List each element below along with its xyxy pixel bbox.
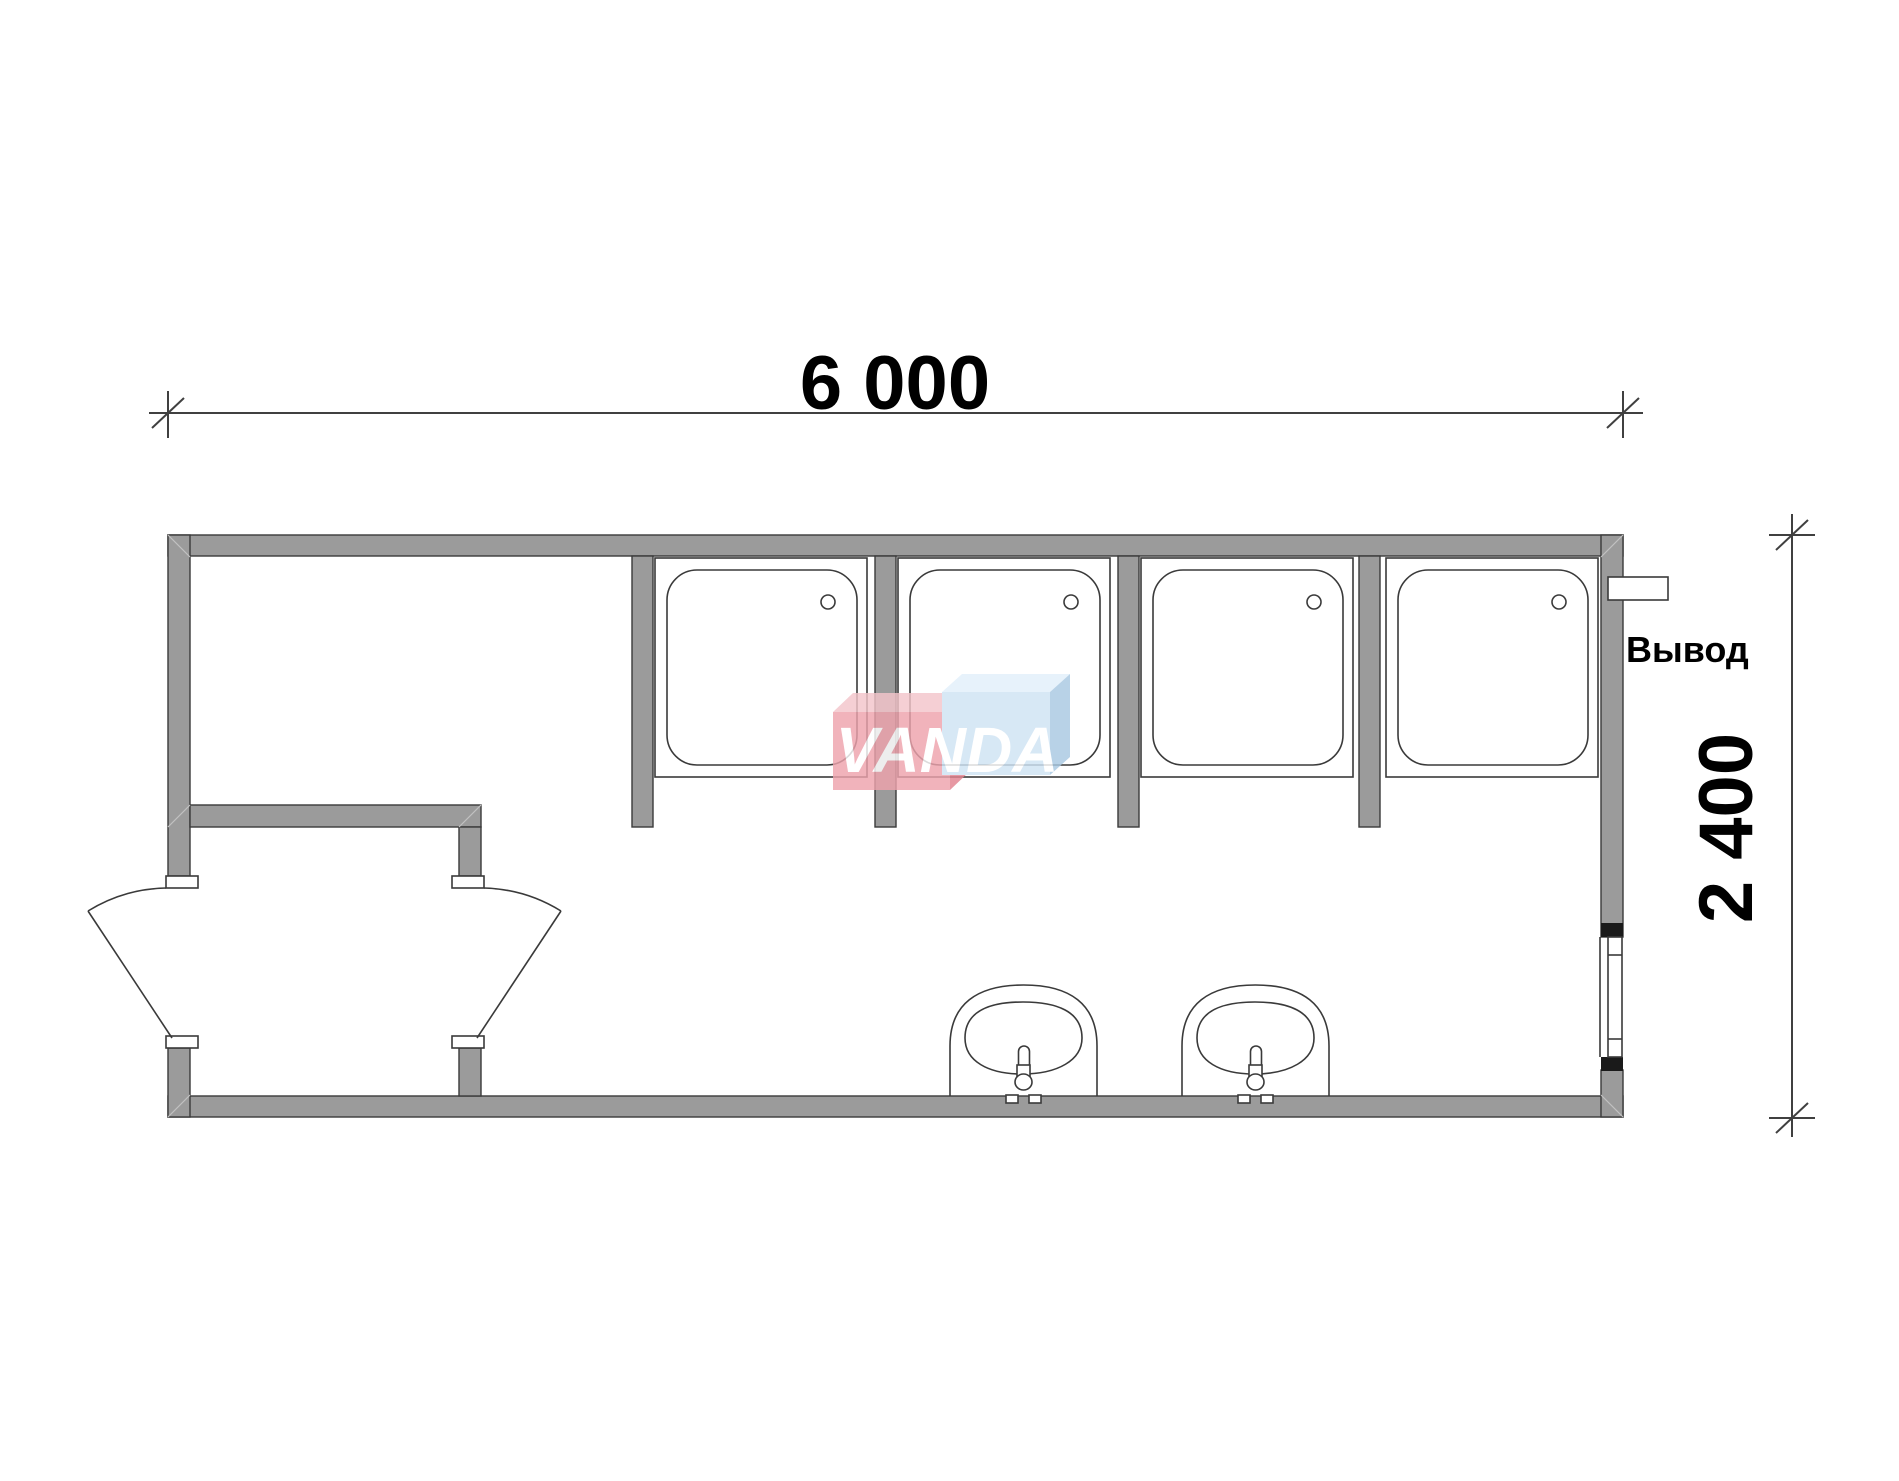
wall-west-upper xyxy=(168,535,190,876)
shower-tray-4-drain xyxy=(1552,595,1566,609)
washbasin-2-trap xyxy=(1247,1074,1264,1090)
wall-vestibule-south xyxy=(190,805,481,827)
window-cap-bottom xyxy=(1601,1057,1623,1071)
shower-tray-3-basin xyxy=(1153,570,1343,765)
washbasin-2-mount-left xyxy=(1238,1095,1250,1103)
inner-door-swing-arc xyxy=(484,888,561,911)
inner-door-leaf-line xyxy=(477,911,561,1038)
washbasins xyxy=(950,985,1329,1103)
washbasin-1-mount-left xyxy=(1006,1095,1018,1103)
vanda-watermark: VANDA xyxy=(833,674,1070,790)
floor-plan-page: 6 000 2 400 xyxy=(0,0,1899,1481)
door-jamb-inner-top xyxy=(452,876,484,888)
window-cap-top xyxy=(1601,923,1623,937)
wall-south xyxy=(168,1096,1623,1117)
floor-plan-drawing: 6 000 2 400 xyxy=(0,0,1899,1481)
washbasin-1 xyxy=(950,985,1097,1103)
door-jamb-inner-bottom xyxy=(452,1036,484,1048)
dimension-top: 6 000 xyxy=(149,341,1643,438)
washbasin-1-trap xyxy=(1015,1074,1032,1090)
partition-shower-4 xyxy=(1359,556,1380,827)
inner-door-leaf xyxy=(477,888,561,1038)
shower-tray-1-drain xyxy=(821,595,835,609)
wall-vestibule-return-lower xyxy=(459,1048,481,1096)
outlet-stub xyxy=(1608,577,1668,600)
shower-tray-3-rim xyxy=(1141,558,1353,777)
wall-vestibule-return-upper xyxy=(459,827,481,876)
washbasin-1-mount-right xyxy=(1029,1095,1041,1103)
window-east xyxy=(1600,923,1623,1071)
wall-north xyxy=(168,535,1623,556)
watermark-text: VANDA xyxy=(836,714,1059,786)
watermark-blue-top xyxy=(942,674,1070,692)
exterior-door-leaf-line xyxy=(88,911,172,1038)
shower-tray-4 xyxy=(1386,558,1598,777)
exterior-door-swing-arc xyxy=(88,888,166,911)
shower-tray-3 xyxy=(1141,558,1353,777)
walls xyxy=(168,535,1623,1117)
washbasin-2-mount-right xyxy=(1261,1095,1273,1103)
shower-tray-4-basin xyxy=(1398,570,1588,765)
wall-east-lower xyxy=(1601,1070,1623,1117)
entrance-doors xyxy=(88,876,561,1048)
shower-tray-4-rim xyxy=(1386,558,1598,777)
dimension-right: 2 400 xyxy=(1684,514,1815,1137)
exterior-door-leaf xyxy=(88,888,172,1038)
dimension-height-label: 2 400 xyxy=(1684,733,1769,923)
washbasin-2 xyxy=(1182,985,1329,1103)
partition-shower-1 xyxy=(632,556,653,827)
shower-tray-1-basin xyxy=(667,570,857,765)
shower-tray-3-drain xyxy=(1307,595,1321,609)
door-jamb-west-top xyxy=(166,876,198,888)
partition-shower-3 xyxy=(1118,556,1139,827)
outlet-label: Вывод xyxy=(1626,629,1749,670)
dimension-width-label: 6 000 xyxy=(800,341,990,426)
shower-tray-2-drain xyxy=(1064,595,1078,609)
outlet: Вывод xyxy=(1608,577,1749,670)
door-jamb-west-bottom xyxy=(166,1036,198,1048)
